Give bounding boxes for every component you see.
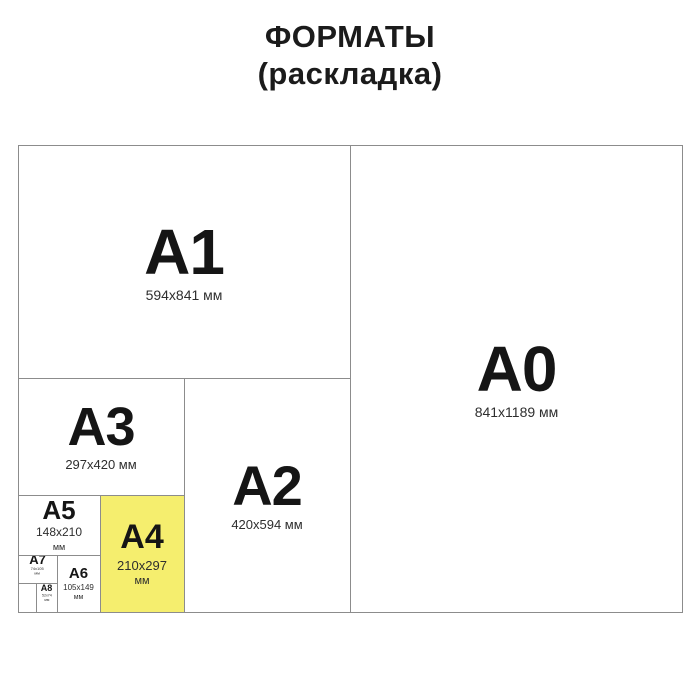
page-title: ФОРМАТЫ (раскладка) <box>0 18 700 92</box>
title-line2: (раскладка) <box>0 55 700 92</box>
divider-a5-a7a6 <box>18 555 100 556</box>
divider-a8-left <box>36 583 37 613</box>
divider-a3-a2 <box>184 378 185 613</box>
divider-a1-a0 <box>350 145 351 613</box>
divider-a7-a8 <box>18 583 57 584</box>
divider-a5-a4 <box>100 495 101 613</box>
paper-formats-diagram: ФОРМАТЫ (раскладка) A1 594x841 мм A0 841… <box>0 0 700 700</box>
divider-a3-a5a4 <box>18 495 184 496</box>
title-line1: ФОРМАТЫ <box>0 18 700 55</box>
divider-a7-a6 <box>57 555 58 613</box>
